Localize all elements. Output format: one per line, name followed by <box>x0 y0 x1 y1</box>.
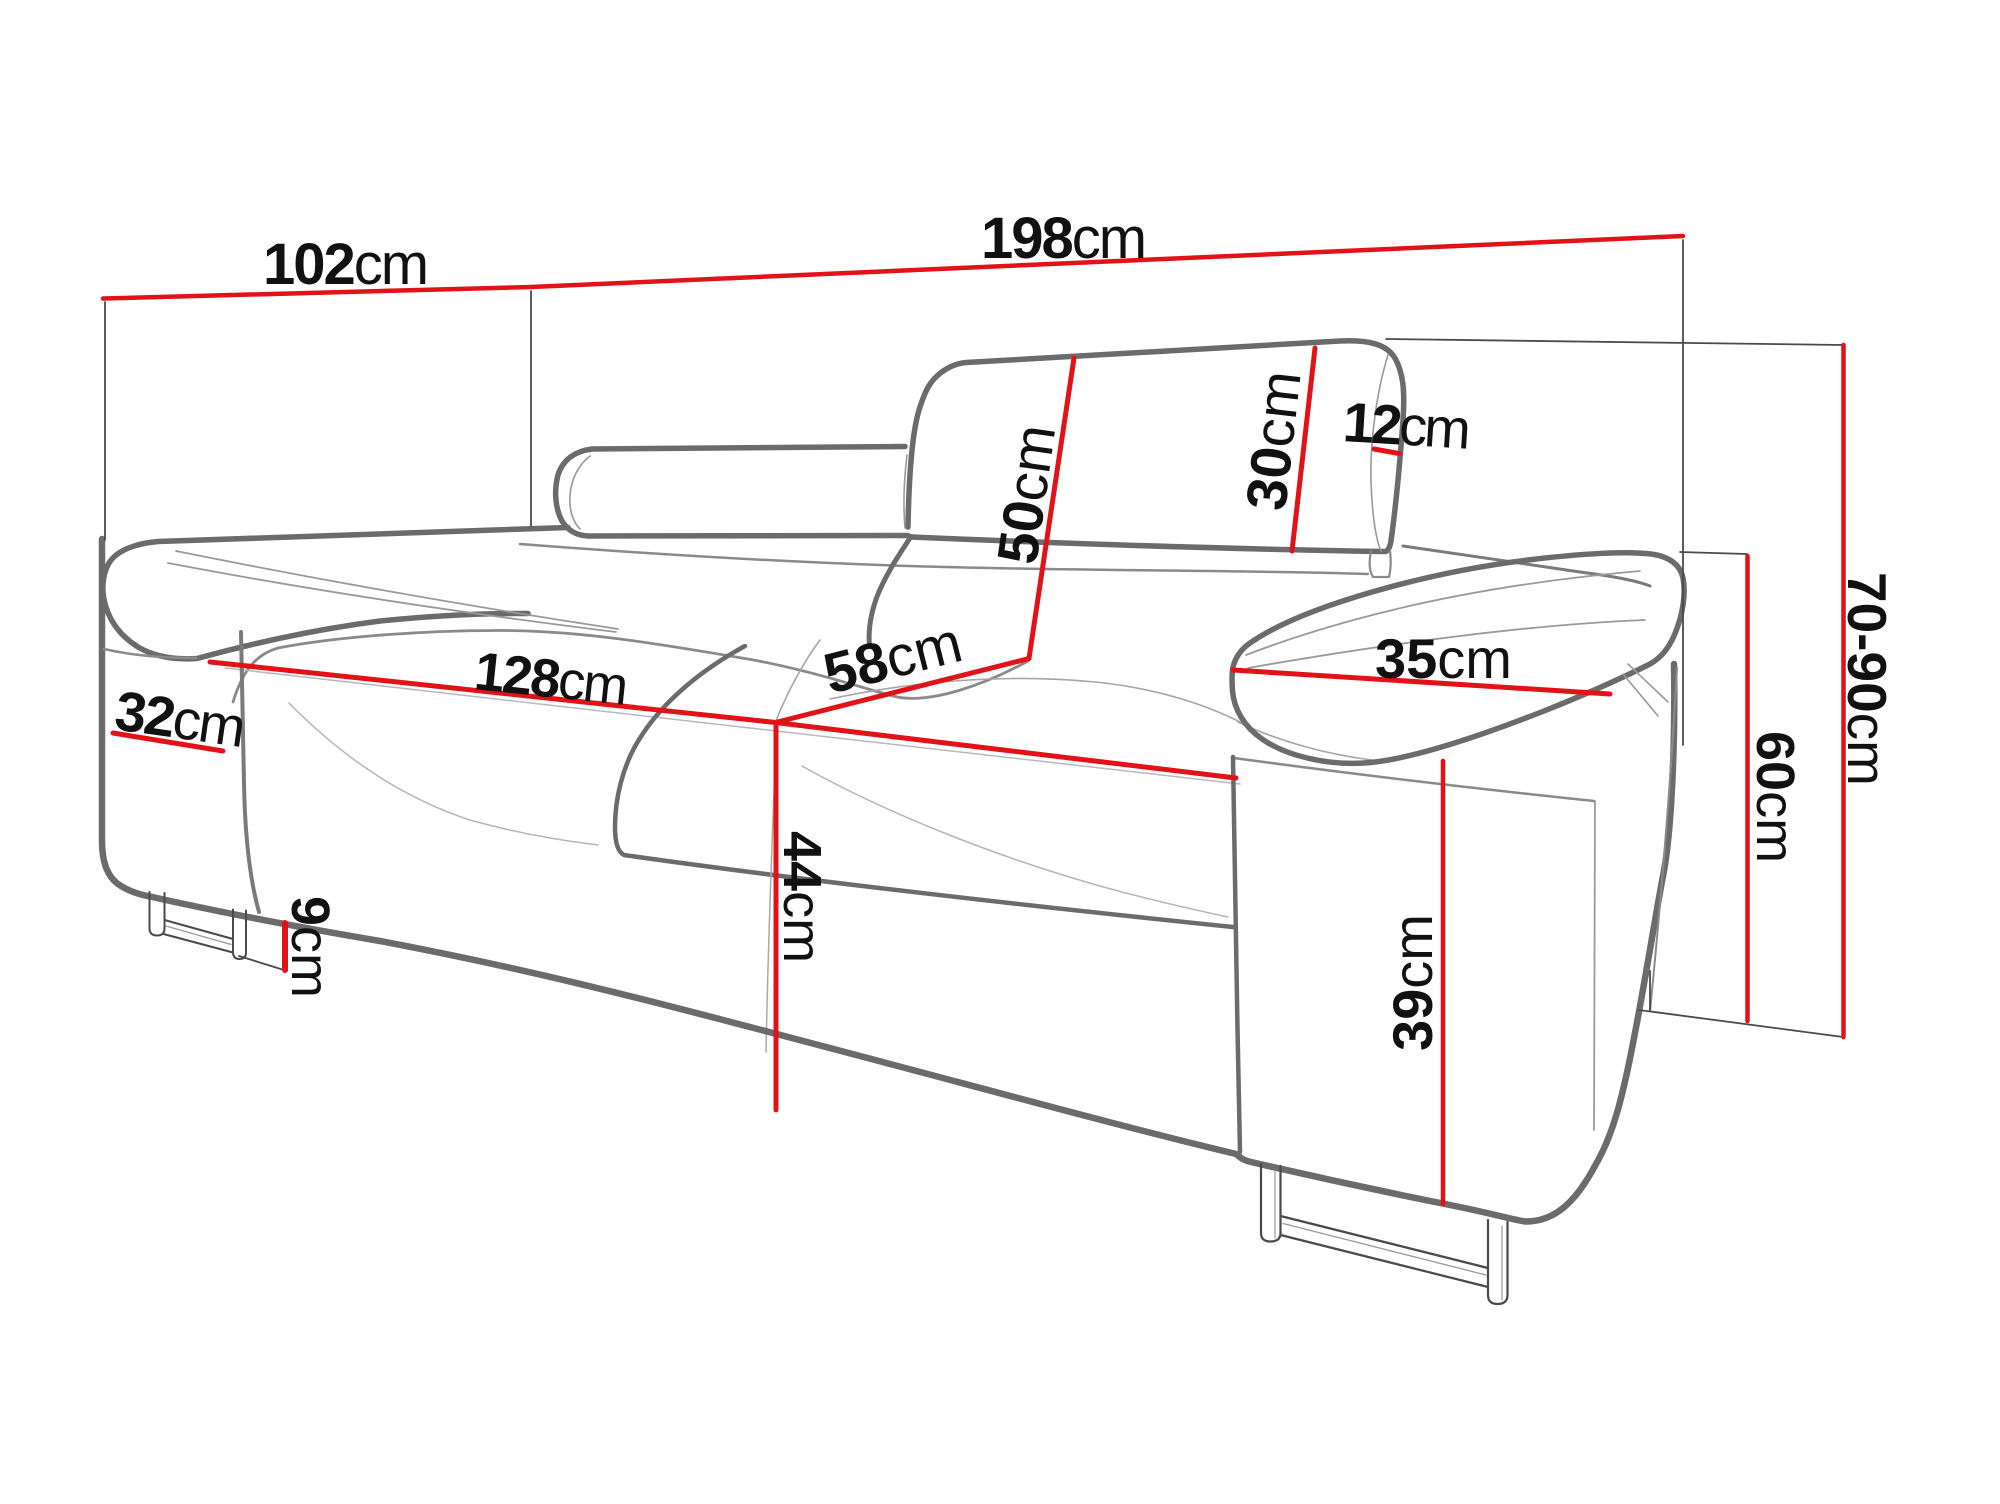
svg-text:9cm: 9cm <box>280 896 340 998</box>
svg-text:70-90cm: 70-90cm <box>1836 572 1898 786</box>
svg-text:12cm: 12cm <box>1341 390 1470 461</box>
svg-text:60cm: 60cm <box>1745 731 1805 863</box>
svg-text:198cm: 198cm <box>981 206 1145 271</box>
svg-text:39cm: 39cm <box>1381 914 1444 1051</box>
svg-text:102cm: 102cm <box>263 232 427 297</box>
svg-text:35cm: 35cm <box>1375 627 1512 690</box>
svg-text:44cm: 44cm <box>772 831 832 963</box>
